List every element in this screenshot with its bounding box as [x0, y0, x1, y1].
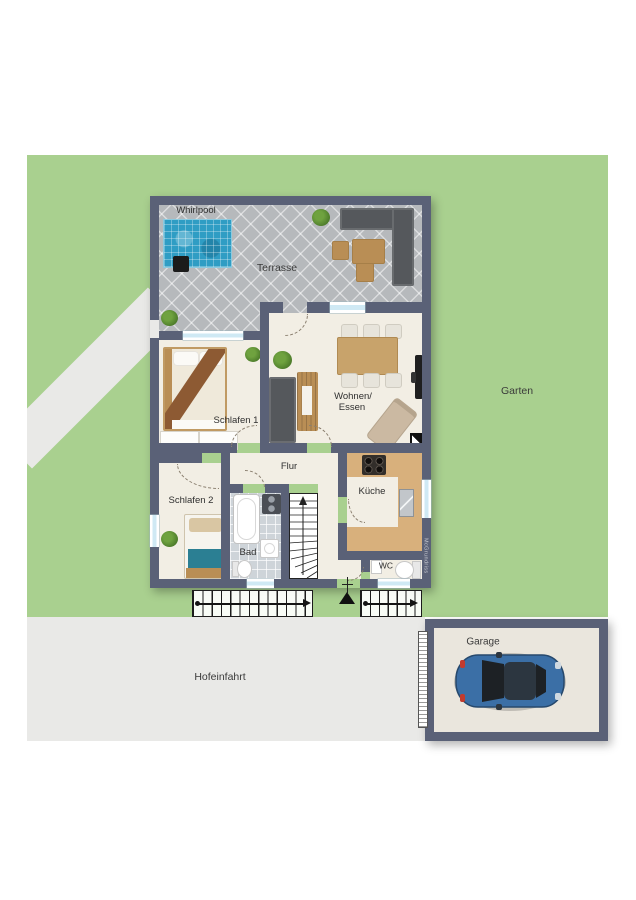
- wall: [338, 443, 347, 497]
- car: [452, 650, 568, 712]
- window: [378, 579, 410, 588]
- bed2: [184, 514, 226, 579]
- washing-machine: [262, 494, 281, 514]
- label-garten: Garten: [501, 386, 533, 398]
- label-essen: Essen: [339, 403, 365, 413]
- window: [183, 331, 243, 340]
- stair-direction-arrow: [303, 599, 311, 607]
- console-runner: [302, 386, 312, 415]
- label-bad: Bad: [240, 548, 257, 558]
- floor-plan-canvas: McGrundriss: [0, 0, 636, 900]
- wall: [261, 443, 307, 453]
- stair-direction-arrow: [410, 599, 418, 607]
- wall-top: [150, 196, 431, 205]
- plant-icon: [245, 347, 261, 362]
- wall: [243, 331, 269, 340]
- tv-mount: [411, 372, 416, 383]
- wall: [150, 443, 237, 453]
- plant-icon: [161, 531, 178, 547]
- dining-chair: [363, 373, 380, 388]
- entrance-threshold-tick: [342, 584, 353, 585]
- window: [247, 579, 274, 588]
- terrace-corner-sofa-side: [392, 208, 414, 286]
- wall: [338, 551, 431, 560]
- dining-chair: [341, 373, 358, 388]
- label-schlafen2: Schlafen 2: [169, 496, 214, 506]
- wall-bottom: [150, 579, 247, 588]
- bathtub: [233, 494, 260, 544]
- kitchen-counter-bottom: [347, 527, 422, 551]
- dining-table: [337, 337, 398, 375]
- stove: [362, 455, 386, 475]
- window: [422, 480, 431, 518]
- window: [150, 515, 159, 547]
- staircase: [289, 493, 318, 579]
- plant-icon: [312, 209, 330, 226]
- living-sofa: [269, 377, 296, 443]
- terrace-table: [352, 239, 385, 264]
- label-wc: WC: [379, 561, 393, 570]
- label-flur: Flur: [281, 462, 297, 472]
- kitchen-sink: [399, 489, 414, 517]
- bath-sink: [260, 539, 279, 558]
- wall-bottom: [274, 579, 337, 588]
- wall: [221, 484, 243, 493]
- garage-door: [418, 631, 428, 728]
- wall: [281, 484, 289, 579]
- entrance-threshold-line: [347, 577, 348, 593]
- wall-right: [422, 196, 431, 480]
- label-wohnen: Wohnen/: [334, 392, 372, 402]
- label-terrasse: Terrasse: [257, 263, 297, 275]
- pool-steps: [173, 256, 189, 272]
- label-garage: Garage: [466, 637, 499, 648]
- plant-icon: [161, 310, 178, 326]
- label-schlafen1: Schlafen 1: [214, 416, 259, 426]
- wall-left: [150, 196, 159, 320]
- wall-left: [150, 338, 159, 515]
- wall: [260, 302, 269, 453]
- watermark-text: McGrundriss: [423, 538, 429, 588]
- terrace-chair: [356, 263, 374, 282]
- wall: [221, 453, 230, 579]
- plant-icon: [273, 351, 292, 369]
- dining-chair: [385, 373, 402, 388]
- wall: [307, 302, 330, 313]
- hall-corridor-floor: [318, 484, 338, 551]
- bath-toilet: [232, 559, 250, 577]
- label-kueche: Küche: [359, 487, 386, 497]
- label-hofeinfahrt: Hofeinfahrt: [194, 672, 245, 684]
- window: [330, 302, 365, 313]
- wall-bottom: [360, 579, 378, 588]
- stair-direction-line: [199, 603, 303, 605]
- wc-toilet: [394, 560, 421, 578]
- wall: [260, 302, 283, 313]
- entrance-arrow-icon: [339, 592, 355, 604]
- wall: [365, 302, 422, 313]
- label-whirlpool: Whirlpool: [176, 206, 216, 216]
- stair-direction-line: [367, 603, 410, 605]
- terrace-gate: [150, 320, 159, 338]
- wall: [338, 523, 347, 551]
- terrace-chair: [332, 241, 349, 260]
